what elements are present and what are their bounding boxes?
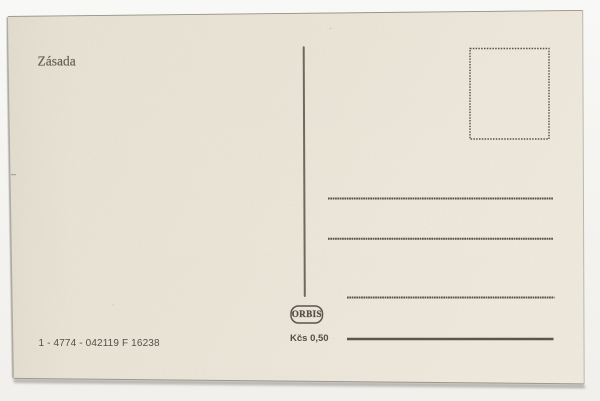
svg-text:Kčs 0,50: Kčs 0,50 [290, 333, 329, 344]
svg-text:ORBIS: ORBIS [292, 309, 322, 319]
svg-text:Zásada: Zásada [38, 54, 76, 69]
svg-text:1 - 4774 - 042119 F 16238: 1 - 4774 - 042119 F 16238 [39, 338, 160, 349]
